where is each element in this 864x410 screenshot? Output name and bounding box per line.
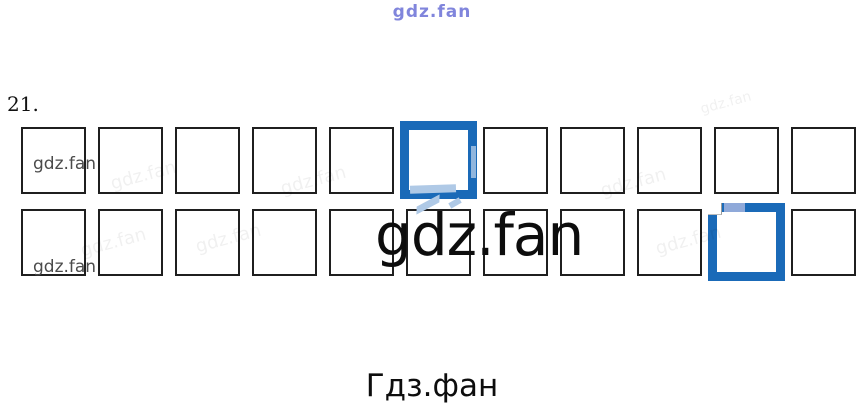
watermark-remnant: gdz.fan — [699, 89, 753, 118]
exercise-number: 21. — [7, 92, 39, 116]
answer-cell — [560, 127, 625, 194]
answer-cell — [637, 127, 702, 194]
square-watermark-row2: gdz.fan — [33, 257, 96, 277]
answer-cell — [98, 127, 163, 194]
answer-cell — [791, 209, 856, 276]
site-watermark-large: gdz.fan — [375, 201, 583, 269]
answer-cell — [175, 127, 240, 194]
answer-cell-highlighted — [400, 121, 477, 199]
workbook-page: gdz.fan 21. gdz.fan gdz.fan gdz.fan Гдз.… — [0, 0, 864, 410]
answer-cell — [252, 209, 317, 276]
highlight-artifact — [724, 203, 745, 212]
answer-cell — [252, 127, 317, 194]
answer-cell — [714, 127, 779, 194]
answer-cell — [637, 209, 702, 276]
site-watermark-top: gdz.fan — [0, 2, 864, 22]
grid-row-1 — [21, 127, 856, 194]
highlight-artifact — [471, 146, 476, 178]
square-watermark-row1: gdz.fan — [33, 154, 96, 174]
site-watermark-bottom: Гдз.фан — [0, 368, 864, 404]
answer-cell — [175, 209, 240, 276]
answer-cell — [98, 209, 163, 276]
answer-cell — [483, 127, 548, 194]
highlight-artifact — [410, 184, 456, 194]
answer-cell — [329, 127, 394, 194]
highlight-artifact — [708, 203, 722, 215]
answer-cell — [791, 127, 856, 194]
answer-cell-highlighted — [708, 203, 785, 281]
